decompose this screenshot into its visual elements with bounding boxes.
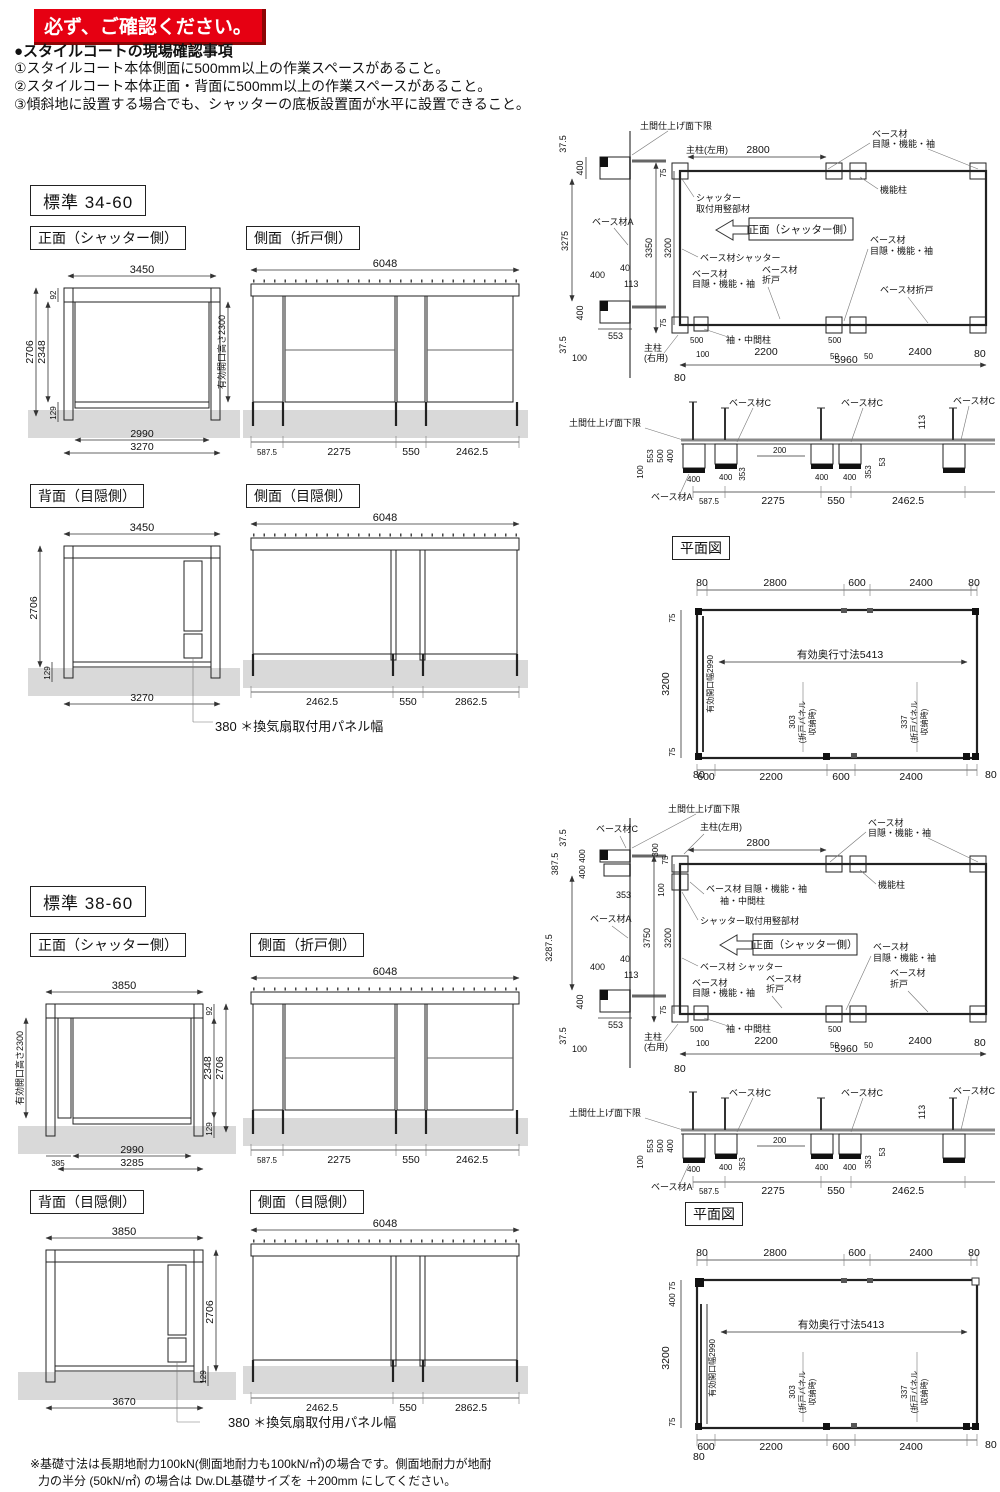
dim-label: 6048: [373, 258, 397, 270]
dim-label: 80: [968, 1247, 980, 1259]
part-label: ベース材A: [651, 491, 693, 502]
dim-label: 3670: [112, 1396, 136, 1408]
dim-label: 2200: [759, 771, 783, 783]
dim-label: 353: [738, 467, 747, 481]
dim-label: 400: [666, 449, 675, 463]
dim-label: 40: [620, 954, 630, 964]
part-label: ベース材 目隠・機能・袖: [706, 883, 807, 894]
dim-label: 2400: [908, 1035, 932, 1047]
part-label: 土間仕上げ面下限: [569, 1107, 641, 1118]
dim-label: 2800: [746, 144, 770, 156]
s2-front-drawing: 3850 有効開口高さ2300 92 2348 2706 129 385 299…: [18, 958, 236, 1186]
dim-label: 37.5: [558, 829, 568, 847]
part-label: (右用): [644, 1041, 668, 1052]
dim-label: 37.5: [558, 135, 568, 153]
part-label: ベース材: [870, 234, 906, 245]
part-label: ベース材C: [841, 397, 884, 408]
part-label: 収納時): [807, 708, 817, 735]
part-label: 目隠・機能・袖: [872, 138, 935, 149]
part-label: (折戸パネル: [797, 1371, 807, 1414]
screen-panel: [253, 550, 517, 654]
part-label: ベース材C: [596, 823, 639, 834]
part-label: ベース材C: [729, 1087, 772, 1098]
part-label: 収納時): [919, 1378, 929, 1405]
dim-label: 2348: [36, 340, 48, 364]
dim-label: 80: [693, 1451, 705, 1463]
direction-arrow: [720, 935, 752, 955]
dim-label: 3450: [130, 264, 154, 276]
dim-label: 113: [917, 415, 927, 429]
dim-label: 2200: [754, 346, 778, 358]
dim-label: 400: [719, 1163, 733, 1172]
part-label: ベース材: [873, 941, 909, 952]
dim-label: 75: [668, 747, 677, 756]
s2-sidefold-label: 側面（折戸側）: [250, 933, 364, 957]
fold-door: [285, 296, 395, 402]
dim-label: 550: [402, 1154, 420, 1166]
dim-label: 2462.5: [306, 1402, 338, 1414]
dim-label: 2706: [24, 340, 36, 364]
dim-label: 80: [985, 1439, 997, 1451]
dim-label: 3287.5: [544, 934, 554, 962]
s1-foundation-section: 土間仕上げ面下限 ベース材C ベース材C ベース材C 113 553 500 4…: [533, 392, 1000, 510]
dim-label: 92: [205, 1006, 214, 1015]
vent-panel: [168, 1265, 186, 1335]
dim-label: 6048: [373, 1218, 397, 1230]
s2-back-drawing: 3850 2706 129 3670: [18, 1214, 236, 1426]
dim-label: 500: [828, 1025, 842, 1034]
s2-plan-drawing: 80 2800 600 2400 80 75 400 3200 75 有効開口幅…: [655, 1228, 995, 1463]
part-label: ベース材C: [729, 397, 772, 408]
s2-sidefold-drawing: 6048 587.5 2275 550 2462.5: [243, 958, 528, 1176]
dim-label: 353: [864, 1155, 873, 1169]
dim-label: 有効奥行寸法5413: [797, 648, 884, 661]
part-label: (折戸パネル: [909, 701, 919, 744]
s1-plan-label: 平面図: [672, 536, 730, 560]
part-label: 折戸: [766, 983, 784, 994]
dim-label: 3850: [112, 1226, 136, 1238]
dim-label: 80: [974, 348, 986, 360]
dim-label: 400: [843, 473, 857, 482]
dim-label: 有効開口高さ2300: [14, 1031, 25, 1105]
dim-label: 200: [773, 1136, 787, 1145]
dim-label: 500: [828, 336, 842, 345]
dim-label: 37.5: [558, 336, 568, 354]
part-label: 主柱: [644, 1031, 662, 1042]
dim-label: 337: [900, 715, 909, 729]
dim-label: 600: [848, 577, 866, 589]
dim-label: 2862.5: [455, 696, 487, 708]
part-label: 土間仕上げ面下限: [668, 803, 740, 814]
part-label: ベース材A: [592, 216, 634, 227]
dim-label: 400: [578, 865, 587, 879]
dim-label: 80: [968, 577, 980, 589]
checklist-heading: ●スタイルコートの現場確認事項: [14, 40, 233, 61]
s2-vent-note: 380 ＊換気扇取付用パネル幅: [228, 1412, 396, 1431]
part-label: 袖・中間柱: [726, 1023, 771, 1034]
dim-label: 2462.5: [892, 1185, 924, 1197]
dim-label: 400: [687, 475, 701, 484]
part-label: ベース材: [868, 817, 904, 828]
screen-panel: [73, 558, 211, 662]
dim-label: 600: [848, 1247, 866, 1259]
dim-label: 400: [666, 1139, 675, 1153]
dim-label: 2400: [899, 1441, 923, 1453]
dim-label: 600: [832, 1441, 850, 1453]
dim-label: 550: [399, 696, 417, 708]
s1-back-label: 背面（目隠側）: [30, 484, 144, 508]
dim-label: 113: [624, 970, 638, 980]
part-label: 主柱: [644, 342, 662, 353]
dim-label: 92: [49, 290, 58, 299]
part-label: 袖・中間柱: [726, 334, 771, 345]
part-label: 土間仕上げ面下限: [569, 417, 641, 428]
dim-label: 553: [608, 1020, 623, 1030]
dim-label: 3270: [130, 441, 154, 453]
dim-label: 2462.5: [892, 495, 924, 507]
dim-label: 3270: [130, 692, 154, 704]
dim-label: 387.5: [550, 853, 560, 876]
s1-front-drawing: 3450 2706 2348 92 129 有効開口高さ2300 2990 32…: [28, 250, 240, 468]
part-label: ベース材: [872, 128, 908, 139]
part-label: 機能柱: [880, 184, 907, 195]
s1-front-label: 正面（シャッター側）: [30, 226, 186, 250]
part-label: ベース材C: [953, 395, 996, 406]
part-label: 袖・中間柱: [720, 895, 765, 906]
part-label: 土間仕上げ面下限: [640, 120, 712, 131]
drawing-sheet: 必ず、ご確認ください。 ●スタイルコートの現場確認事項 ①スタイルコート本体側面…: [0, 0, 1000, 1492]
dim-label: 500: [690, 336, 704, 345]
part-label: シャッター取付用竪部材: [700, 915, 799, 926]
dim-label: 500: [690, 1025, 704, 1034]
dim-label: 80: [985, 769, 997, 781]
dim-label: 2200: [759, 1441, 783, 1453]
dim-label: 129: [49, 406, 58, 420]
dim-label: 2400: [908, 346, 932, 358]
part-label: 機能柱: [878, 879, 905, 890]
part-label: 目隠・機能・袖: [870, 245, 933, 256]
dim-label: 3200: [660, 672, 672, 696]
part-label: ベース材: [762, 264, 798, 275]
part-label: 目隠・機能・袖: [692, 278, 755, 289]
dim-label: 3200: [663, 238, 673, 258]
dim-label: 2800: [763, 577, 787, 589]
dim-label: 2400: [909, 577, 933, 589]
part-label: ベース材シャッター: [700, 252, 781, 263]
s2-sidescreen-drawing: 6048 2462.5 550 2862.5: [243, 1214, 528, 1414]
dim-label: 303: [788, 715, 797, 729]
dim-label: 3200: [663, 928, 673, 948]
model-title-38-60: 標準 38-60: [30, 886, 146, 917]
checklist-note-3: ③傾斜地に設置する場合でも、シャッターの底板設置面が水平に設置できること。: [14, 95, 530, 113]
dim-label: 3200: [660, 1346, 672, 1370]
part-label: 正面（シャッター側）: [753, 938, 858, 951]
part-label: 折戸: [890, 978, 908, 989]
s2-foundation-section: 土間仕上げ面下限 ベース材C ベース材C ベース材C 113 553 500 4…: [533, 1082, 1000, 1200]
dim-label: 100: [636, 465, 645, 479]
dim-label: 400: [575, 994, 585, 1009]
dim-label: 303: [788, 1385, 797, 1399]
dim-label: 2275: [761, 495, 785, 507]
part-label: 収納時): [919, 708, 929, 735]
part-label: ベース材: [766, 973, 802, 984]
s2-foundation-plan: 37.5 ベース材C 400 400 387.5 353 ベース材A 3287.…: [528, 798, 1000, 1088]
dim-label: 113: [917, 1105, 927, 1119]
part-label: 収納時): [807, 1378, 817, 1405]
foundation-footnote-line2: 力の半分 (50kN/㎡) の場合は Dw.DL基礎サイズを ＋200mm にし…: [38, 1473, 456, 1490]
dim-label: 3350: [644, 238, 654, 258]
dim-label: 353: [738, 1157, 747, 1171]
dim-label: 80: [696, 1247, 708, 1259]
fold-door: [285, 1004, 395, 1110]
dim-label: 75: [659, 318, 668, 327]
dim-label: 400: [719, 473, 733, 482]
shutter-panel: [75, 302, 209, 402]
screen-panel: [253, 1256, 517, 1360]
dim-label: 500: [656, 1139, 665, 1153]
dim-label: 2400: [909, 1247, 933, 1259]
s2-front-label: 正面（シャッター側）: [30, 933, 186, 957]
dim-label: 129: [199, 1370, 208, 1384]
dim-label: 5960: [834, 354, 858, 366]
part-label: ベース材: [890, 967, 926, 978]
dim-label: 200: [773, 446, 787, 455]
part-label: ベース材 シャッター: [700, 961, 783, 972]
s1-sidefold-label: 側面（折戸側）: [246, 226, 360, 250]
dim-label: 400: [687, 1165, 701, 1174]
dim-label: 400: [590, 270, 605, 280]
dim-label: 2990: [120, 1144, 144, 1156]
part-label: 目隠・機能・袖: [873, 952, 936, 963]
dim-label: 3450: [130, 522, 154, 534]
dim-label: 2800: [763, 1247, 787, 1259]
dim-label: 400: [668, 1293, 677, 1307]
fold-door: [427, 296, 513, 402]
dim-label: 2990: [130, 428, 154, 440]
dim-label: 75: [668, 1281, 677, 1290]
dim-label: 有効開口高さ2300: [216, 315, 227, 389]
fold-door: [427, 1004, 513, 1110]
part-label: 主柱(左用): [700, 821, 742, 832]
dim-label: 587.5: [257, 448, 278, 457]
checklist-note-2: ②スタイルコート本体正面・背面に500mm以上の作業スペースがあること。: [14, 77, 491, 95]
dim-label: 553: [608, 331, 623, 341]
checklist-note-1: ①スタイルコート本体側面に500mm以上の作業スペースがあること。: [14, 59, 449, 77]
dim-label: 2462.5: [456, 446, 488, 458]
dim-label: 75: [661, 855, 670, 864]
part-label: ベース材折戸: [880, 284, 934, 295]
dim-label: 385: [51, 1159, 65, 1168]
s2-plan-label: 平面図: [685, 1202, 743, 1226]
dim-label: 53: [878, 1147, 887, 1156]
dim-label: 353: [616, 890, 631, 900]
dim-label: 337: [900, 1385, 909, 1399]
part-label: ベース材C: [841, 1087, 884, 1098]
dim-label: 100: [696, 350, 710, 359]
dim-label: 2800: [746, 837, 770, 849]
dim-label: 553: [646, 1139, 655, 1153]
dim-label: 80: [696, 577, 708, 589]
dim-label: 75: [659, 168, 668, 177]
dim-label: 587.5: [699, 497, 720, 506]
s1-sidescreen-drawing: 6048 2462.5 550 2862.5: [243, 508, 528, 708]
s1-plan-drawing: 80 2800 600 2400 80 75 3200 75 有効開口幅2990…: [655, 562, 995, 780]
dim-label: 80: [674, 1063, 686, 1075]
part-label: (折戸パネル: [797, 701, 807, 744]
part-label: 折戸: [762, 274, 780, 285]
dim-label: 100: [572, 1044, 587, 1054]
dim-label: 587.5: [699, 1187, 720, 1196]
model-title-34-60: 標準 34-60: [30, 185, 146, 216]
dim-label: 550: [827, 1185, 845, 1197]
dim-label: 6048: [373, 966, 397, 978]
dim-label: 129: [43, 666, 52, 680]
dim-label: 500: [656, 449, 665, 463]
dim-label: 129: [205, 1122, 214, 1136]
dim-label: 100: [657, 883, 666, 897]
dim-label: 80: [974, 1037, 986, 1049]
s2-sidescreen-label: 側面（目隠側）: [250, 1190, 364, 1214]
dim-label: 75: [668, 613, 677, 622]
screen-panel: [55, 1262, 194, 1366]
dim-label: 3750: [642, 928, 652, 948]
dim-label: 400: [575, 305, 585, 320]
dim-label: 75: [659, 1005, 668, 1014]
dim-label: 100: [696, 1039, 710, 1048]
part-label: ベース材: [692, 268, 728, 279]
dim-label: 587.5: [257, 1156, 278, 1165]
shutter-panel: [73, 1018, 191, 1118]
dim-label: 300: [651, 843, 660, 857]
dim-label: 400: [815, 1163, 829, 1172]
dim-label: 80: [693, 769, 705, 781]
part-label: 主柱(左用): [686, 144, 728, 155]
dim-label: 353: [864, 465, 873, 479]
dim-label: 53: [878, 457, 887, 466]
dim-label: 3850: [112, 980, 136, 992]
dim-label: 2275: [761, 1185, 785, 1197]
part-label: (折戸パネル: [909, 1371, 919, 1414]
dim-label: 2706: [28, 596, 40, 620]
dim-label: 400: [815, 473, 829, 482]
dim-label: 100: [636, 1155, 645, 1169]
s1-foundation-plan: 37.5 400 3275 ベース材A 400 40 113 400 553 3…: [528, 113, 1000, 398]
dim-label: 6048: [373, 512, 397, 524]
part-label: 目隠・機能・袖: [868, 827, 931, 838]
dim-label: 550: [402, 446, 420, 458]
dim-label: 2462.5: [306, 696, 338, 708]
part-label: ベース材A: [651, 1181, 693, 1192]
part-label: 取付用竪部材: [696, 203, 750, 214]
part-label: シャッター: [696, 193, 741, 203]
dim-label: 600: [832, 771, 850, 783]
dim-label: 有効奥行寸法5413: [798, 1318, 885, 1331]
dim-label: 5960: [834, 1043, 858, 1055]
direction-arrow: [716, 220, 748, 240]
dim-label: 400: [575, 160, 585, 175]
dim-label: 113: [624, 279, 638, 289]
dim-label: 2706: [204, 1300, 216, 1324]
part-label: 目隠・機能・袖: [692, 987, 755, 998]
s1-sidescreen-label: 側面（目隠側）: [246, 484, 360, 508]
dim-label: 2275: [327, 446, 351, 458]
foundation-footnote-line1: ※基礎寸法は長期地耐力100kN(側面地耐力も100kN/㎡)の場合です。側面地…: [30, 1456, 492, 1473]
dim-label: 400: [843, 1163, 857, 1172]
dim-label: 2400: [899, 771, 923, 783]
dim-label: 2706: [214, 1056, 226, 1080]
dim-label: 40: [620, 263, 630, 273]
dim-label: 100: [572, 353, 587, 363]
s1-back-drawing: 3450 2706 129 3270: [28, 508, 240, 723]
vent-panel: [184, 561, 202, 631]
dim-label: 553: [646, 449, 655, 463]
s2-back-label: 背面（目隠側）: [30, 1190, 144, 1214]
part-label: ベース材A: [590, 913, 632, 924]
part-label: ベース材C: [953, 1085, 996, 1096]
dim-label: 2348: [202, 1056, 214, 1080]
dim-label: 80: [674, 372, 686, 384]
side-shutter-column: [58, 1018, 71, 1118]
dim-label: 2200: [754, 1035, 778, 1047]
dim-label: 有効開口幅2990: [707, 1339, 717, 1397]
dim-label: 2275: [327, 1154, 351, 1166]
dim-label: 2862.5: [455, 1402, 487, 1414]
dim-label: 550: [827, 495, 845, 507]
part-label: 正面（シャッター側）: [749, 223, 854, 236]
dim-label: 75: [668, 1417, 677, 1426]
s1-vent-note: 380 ＊換気扇取付用パネル幅: [215, 716, 383, 735]
dim-label: 400: [578, 849, 587, 863]
dim-label: 37.5: [558, 1027, 568, 1045]
s1-sidefold-drawing: 6048 587.5 2275 550 2462.5: [243, 250, 528, 468]
dim-label: 50: [864, 352, 873, 361]
dim-label: 3285: [120, 1157, 144, 1169]
dim-label: 50: [864, 1041, 873, 1050]
dim-label: 550: [399, 1402, 417, 1414]
part-label: ベース材: [692, 977, 728, 988]
part-label: (右用): [644, 352, 668, 363]
dim-label: 2462.5: [456, 1154, 488, 1166]
dim-label: 3275: [560, 231, 570, 251]
dim-label: 有効開口幅2990: [705, 655, 715, 713]
dim-label: 400: [590, 962, 605, 972]
